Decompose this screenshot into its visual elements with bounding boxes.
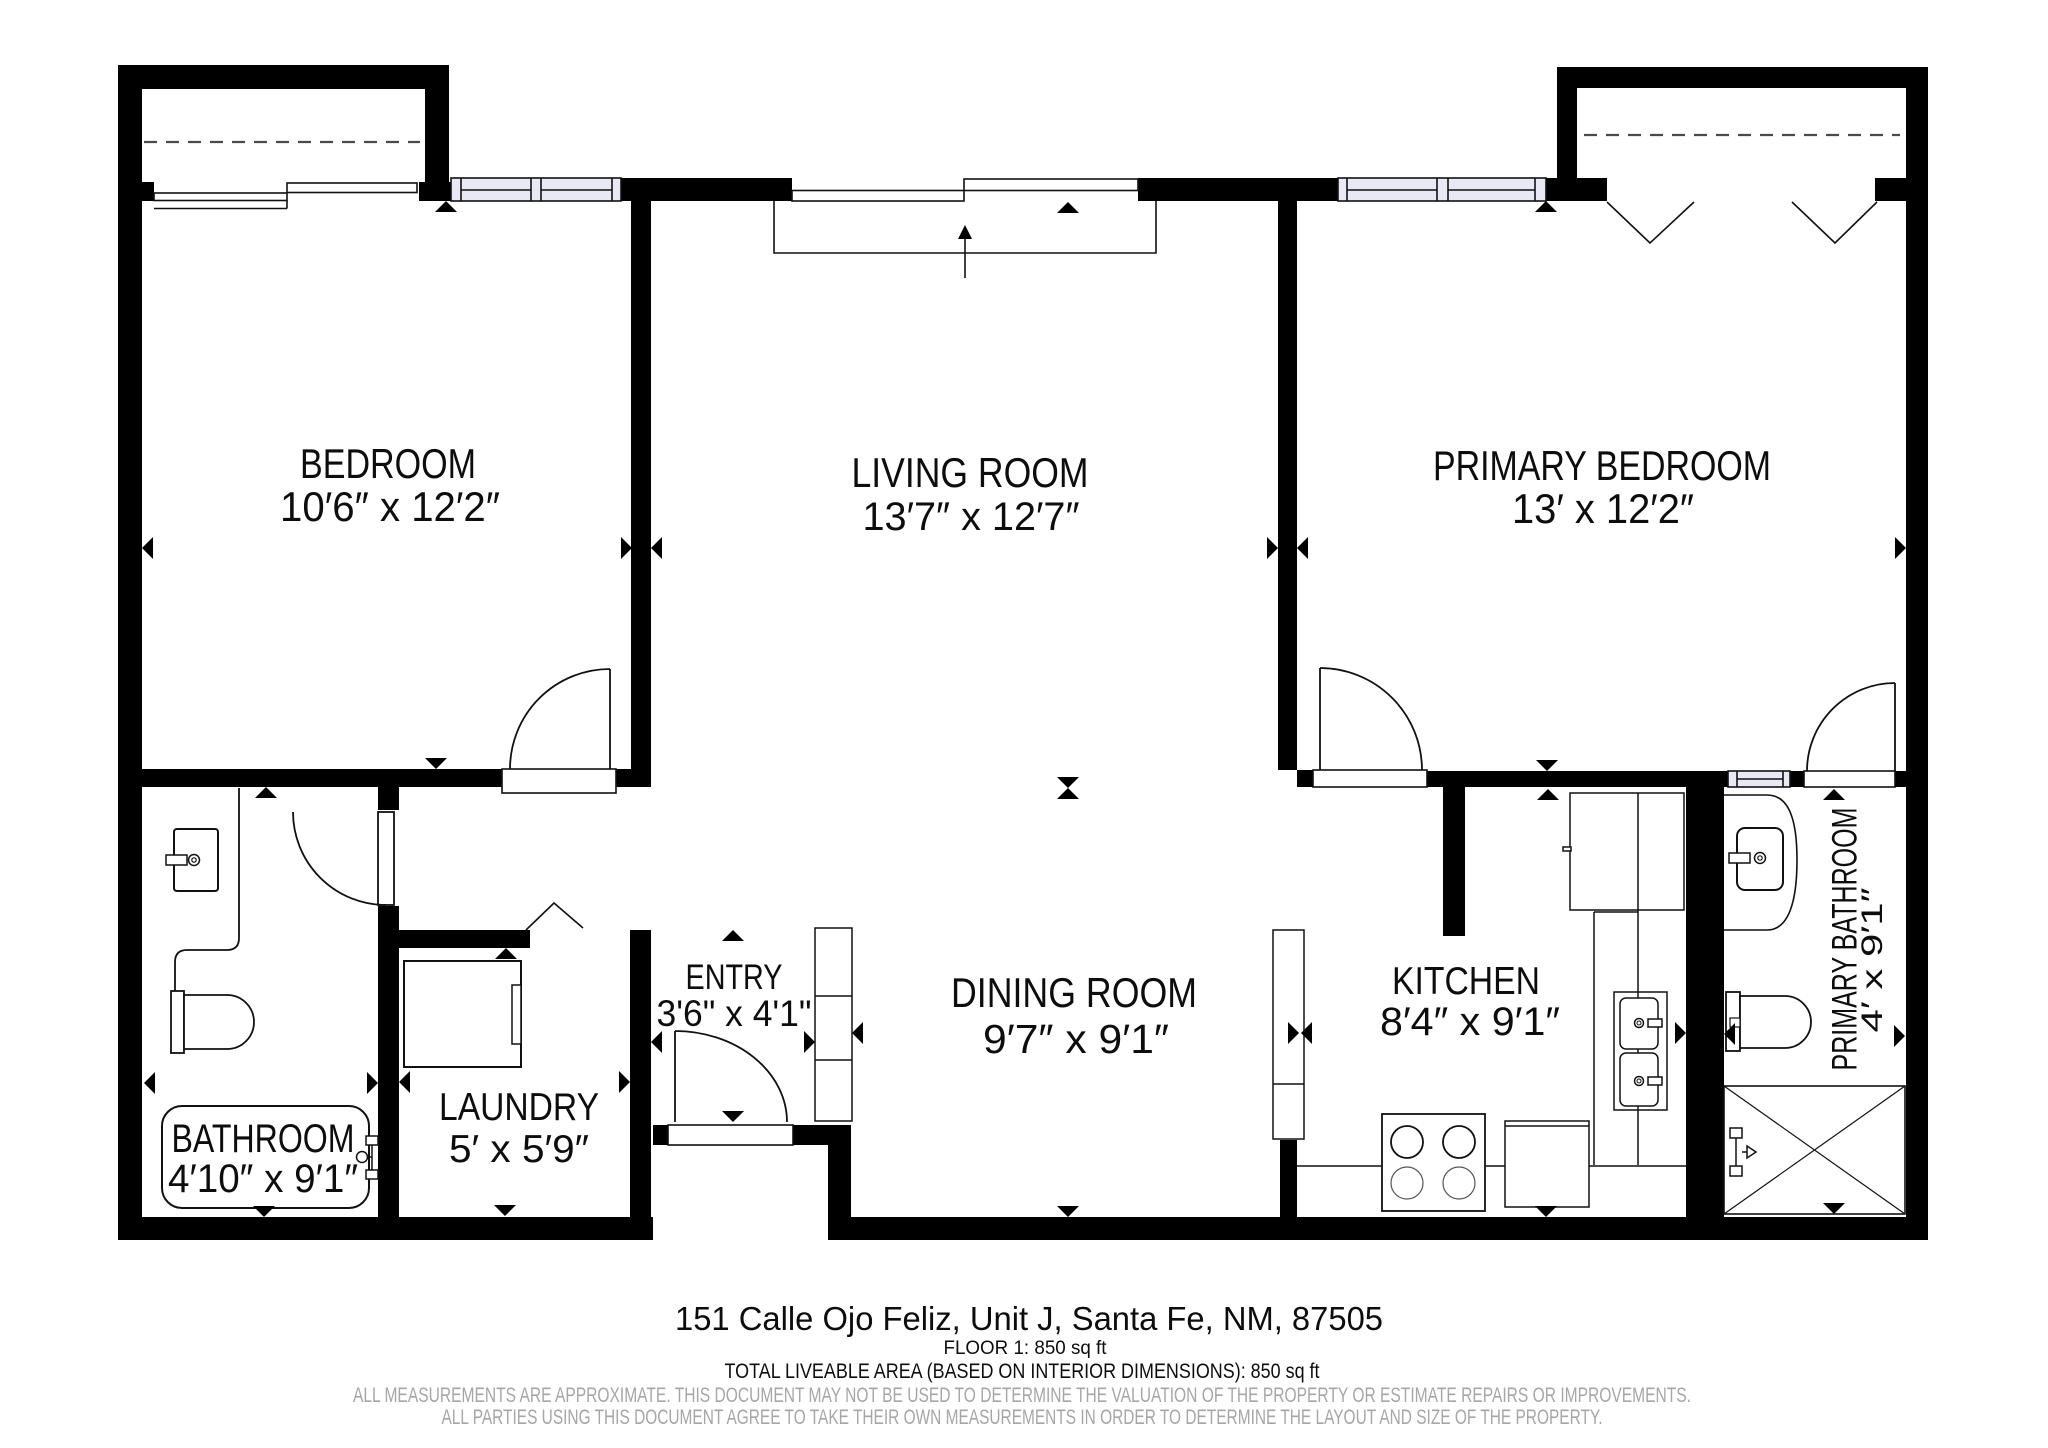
svg-text:LAUNDRY: LAUNDRY [439,1086,599,1129]
svg-text:DINING ROOM: DINING ROOM [951,969,1197,1016]
svg-text:3'6" x 4'1": 3'6" x 4'1" [657,993,812,1034]
svg-text:PRIMARY BEDROOM: PRIMARY BEDROOM [1433,442,1771,489]
svg-text:5′ x 5′9″: 5′ x 5′9″ [449,1128,589,1171]
svg-text:10′6″ x 12′2″: 10′6″ x 12′2″ [280,483,500,530]
svg-text:TOTAL LIVEABLE AREA (BASED ON: TOTAL LIVEABLE AREA (BASED ON INTERIOR D… [725,1360,1320,1383]
svg-text:4′10″ x 9′1″: 4′10″ x 9′1″ [168,1157,358,1201]
svg-text:BATHROOM: BATHROOM [172,1117,355,1161]
svg-text:4′ x 9′1″: 4′ x 9′1″ [1856,887,1889,1033]
svg-text:BEDROOM: BEDROOM [300,440,476,487]
svg-text:LIVING ROOM: LIVING ROOM [852,449,1089,496]
svg-text:13′ x 12′2″: 13′ x 12′2″ [1512,485,1694,532]
svg-text:ENTRY: ENTRY [686,958,783,997]
svg-text:9′7″ x 9′1″: 9′7″ x 9′1″ [983,1016,1169,1062]
svg-text:FLOOR 1: 850 sq ft: FLOOR 1: 850 sq ft [944,1338,1108,1359]
svg-text:8′4″ x 9′1″: 8′4″ x 9′1″ [1380,1000,1560,1044]
svg-text:151 Calle Ojo Feliz, Unit J, S: 151 Calle Ojo Feliz, Unit J, Santa Fe, N… [675,1301,1383,1338]
svg-text:13′7″ x 12′7″: 13′7″ x 12′7″ [863,495,1080,539]
svg-text:KITCHEN: KITCHEN [1392,960,1540,1003]
svg-text:ALL MEASUREMENTS ARE APPROXIMA: ALL MEASUREMENTS ARE APPROXIMATE. THIS D… [353,1384,1691,1407]
svg-text:ALL PARTIES USING THIS DOCUMEN: ALL PARTIES USING THIS DOCUMENT AGREE TO… [442,1406,1603,1429]
